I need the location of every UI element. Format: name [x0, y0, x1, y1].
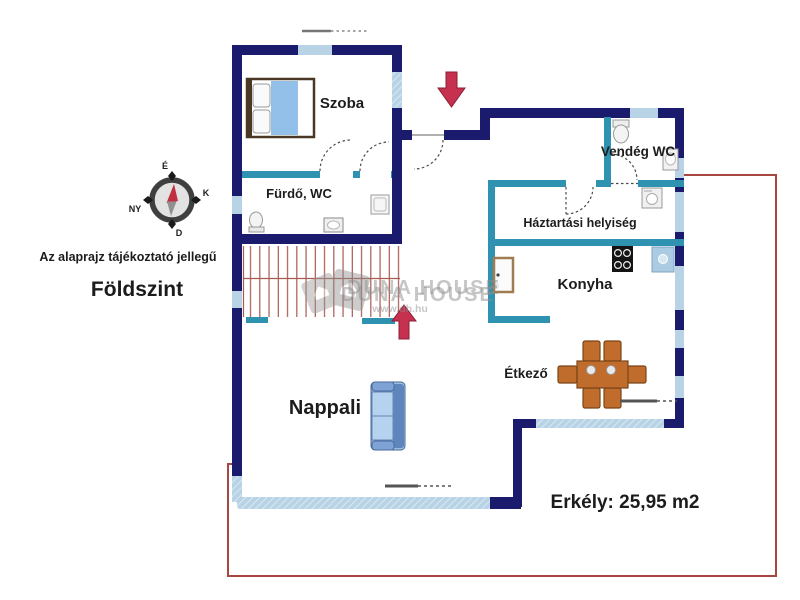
bathroom-washbasin-icon	[324, 218, 343, 232]
compass-north-label: É	[162, 161, 168, 171]
sofa-icon	[371, 382, 405, 450]
watermark-reg: ®	[492, 281, 499, 291]
room-label-haztartasi: Háztartási helyiség	[523, 216, 636, 230]
floor-title: Földszint	[91, 278, 183, 301]
watermark-url: www.dh.hu	[371, 303, 428, 315]
shower-tray-icon	[371, 195, 389, 214]
room-label-vendeg-wc: Vendég WC	[601, 144, 676, 159]
room-label-etkezo: Étkező	[504, 366, 548, 381]
compass-south-label: D	[176, 228, 183, 238]
room-label-nappali: Nappali	[289, 397, 361, 419]
room-label-konyha: Konyha	[557, 276, 613, 293]
washing-machine-icon	[642, 188, 662, 208]
balcony-area-label: Erkély: 25,95 m2	[551, 492, 700, 513]
compass-east-label: K	[203, 188, 210, 198]
stove-icon	[612, 246, 633, 272]
floorplan-drawing: É K NY D DUNA HOUSE DUNA HOUSE ® www.dh.…	[0, 0, 800, 600]
disclaimer-text: Az alaprajz tájékoztató jellegű	[39, 250, 216, 264]
kitchen-sink-icon	[652, 247, 674, 272]
room-label-furdo-wc: Fürdő, WC	[266, 186, 332, 201]
floorplan-page: É K NY D DUNA HOUSE DUNA HOUSE ® www.dh.…	[0, 0, 800, 600]
compass-west-label: NY	[129, 204, 142, 214]
guest-toilet-icon	[613, 120, 629, 143]
room-label-szoba: Szoba	[320, 95, 365, 112]
bed-icon	[247, 79, 314, 137]
